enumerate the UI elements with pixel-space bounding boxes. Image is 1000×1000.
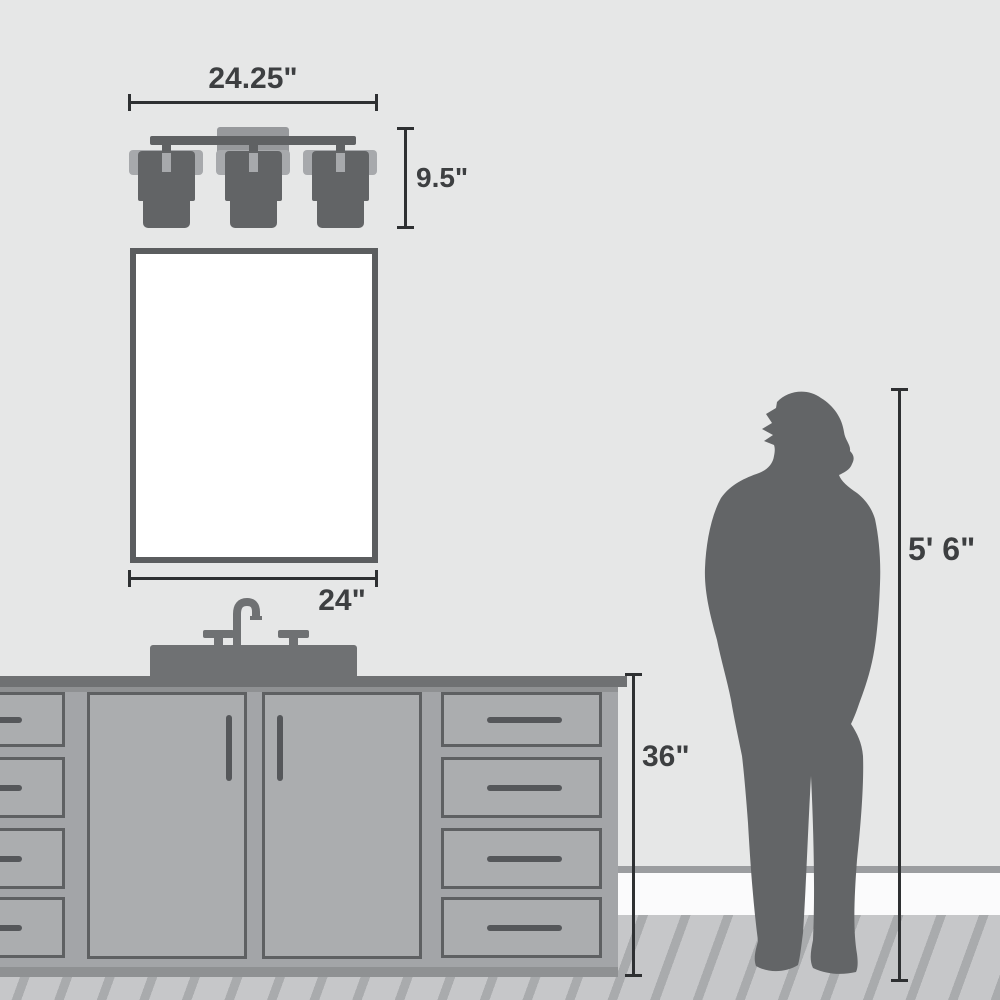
drawer-handle [487,856,562,862]
person-silhouette [693,388,883,978]
drawer-handle [0,717,22,723]
fixture-height-dim-line [404,127,407,229]
drawer-handle [487,785,562,791]
drawer-handle [487,925,562,931]
countertop [0,676,627,687]
drawer [441,757,602,818]
vanity-height-dim-line [632,673,635,977]
door-handle [226,715,232,781]
person-height-label: 5' 6" [908,533,975,565]
cabinet-toe-kick [0,967,618,977]
countertop-edge [0,687,618,692]
sink-deck [150,645,357,677]
drawer-handle [0,856,22,862]
fixture-width-label: 24.25" [128,64,378,94]
drawer [0,692,65,747]
lamp-socket [336,153,345,172]
cabinet-door-right [262,692,422,959]
drawer [0,897,65,958]
lamp-socket [162,153,171,172]
drawer [0,757,65,818]
drawer [441,828,602,889]
dimension-diagram: 24.25" 9.5" 24" 36" [0,0,1000,1000]
fixture-height-label: 9.5" [416,164,468,192]
mirror-width-dim-line [128,577,378,580]
lamp-shade-lower [143,201,190,228]
drawer [441,897,602,958]
drawer-handle [0,925,22,931]
cabinet-door-left [87,692,247,959]
drawer-handle [487,717,562,723]
lamp-socket [249,153,258,172]
lamp-shade-lower [317,201,364,228]
drawer [0,828,65,889]
drawer [441,692,602,747]
drawer-handle [0,785,22,791]
lamp-shade-lower [230,201,277,228]
vanity-cabinet [0,692,618,967]
mirror [130,248,378,563]
person-height-dim-line [898,388,901,982]
door-handle [277,715,283,781]
fixture-width-dim-line [128,101,378,104]
vanity-height-label: 36" [642,742,690,772]
